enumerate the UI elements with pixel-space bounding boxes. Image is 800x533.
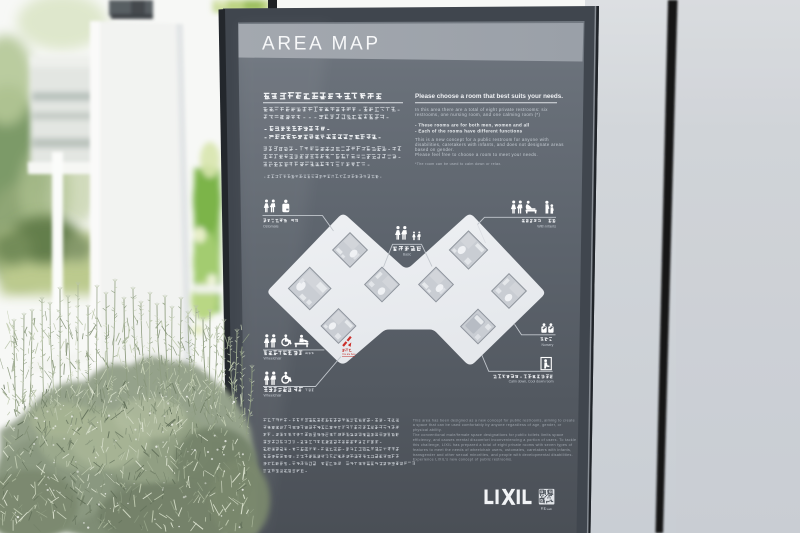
svg-text:efficiency, and causes mental: efficiency, and causes mental discomfort… bbox=[413, 438, 577, 442]
svg-text:Wheelchair: Wheelchair bbox=[264, 393, 283, 397]
svg-text:transgender and other sexual m: transgender and other sexual minorities,… bbox=[413, 453, 573, 457]
svg-text:Wheelchair: Wheelchair bbox=[264, 357, 283, 361]
svg-text:Please feel free to choose a r: Please feel free to choose a room to mee… bbox=[415, 152, 538, 157]
svg-text:restrooms, one nursing room, a: restrooms, one nursing room, and one cal… bbox=[415, 112, 540, 117]
svg-text:Please choose a room that best: Please choose a room that best suits you… bbox=[415, 93, 563, 100]
svg-text:features to meet the needs of: features to meet the needs of wheelchair… bbox=[413, 448, 572, 452]
svg-text:The conventional male/female s: The conventional male/female space desig… bbox=[413, 433, 564, 437]
svg-text:With infants: With infants bbox=[537, 225, 556, 229]
svg-text:Basic: Basic bbox=[403, 253, 412, 257]
svg-text:AREA MAP: AREA MAP bbox=[262, 34, 381, 55]
svg-text:You are here: You are here bbox=[342, 353, 356, 356]
svg-text:*The room can be used to calm: *The room can be used to calm down or re… bbox=[415, 162, 502, 166]
svg-text:- These rooms are for both men: - These rooms are for both men, women an… bbox=[415, 123, 530, 128]
svg-text:Nursery: Nursery bbox=[542, 343, 554, 347]
svg-text:web: web bbox=[547, 507, 553, 511]
svg-text:Experience LIXIL's new concept: Experience LIXIL's new concept of public… bbox=[413, 458, 513, 462]
svg-text:physical ability.: physical ability. bbox=[413, 428, 442, 432]
svg-text:Ostomate: Ostomate bbox=[263, 224, 279, 228]
svg-text:This area has been designed as: This area has been designed as a new con… bbox=[413, 418, 575, 422]
svg-text:this challenge, LIXIL has prep: this challenge, LIXIL has prepared a tot… bbox=[413, 443, 573, 447]
svg-text:a space that can be used comfo: a space that can be used comfortably by … bbox=[413, 423, 562, 427]
svg-text:Calm down, Cool down room: Calm down, Cool down room bbox=[509, 380, 554, 384]
svg-text:- Each of the rooms have diffe: - Each of the rooms have different funct… bbox=[415, 128, 523, 133]
